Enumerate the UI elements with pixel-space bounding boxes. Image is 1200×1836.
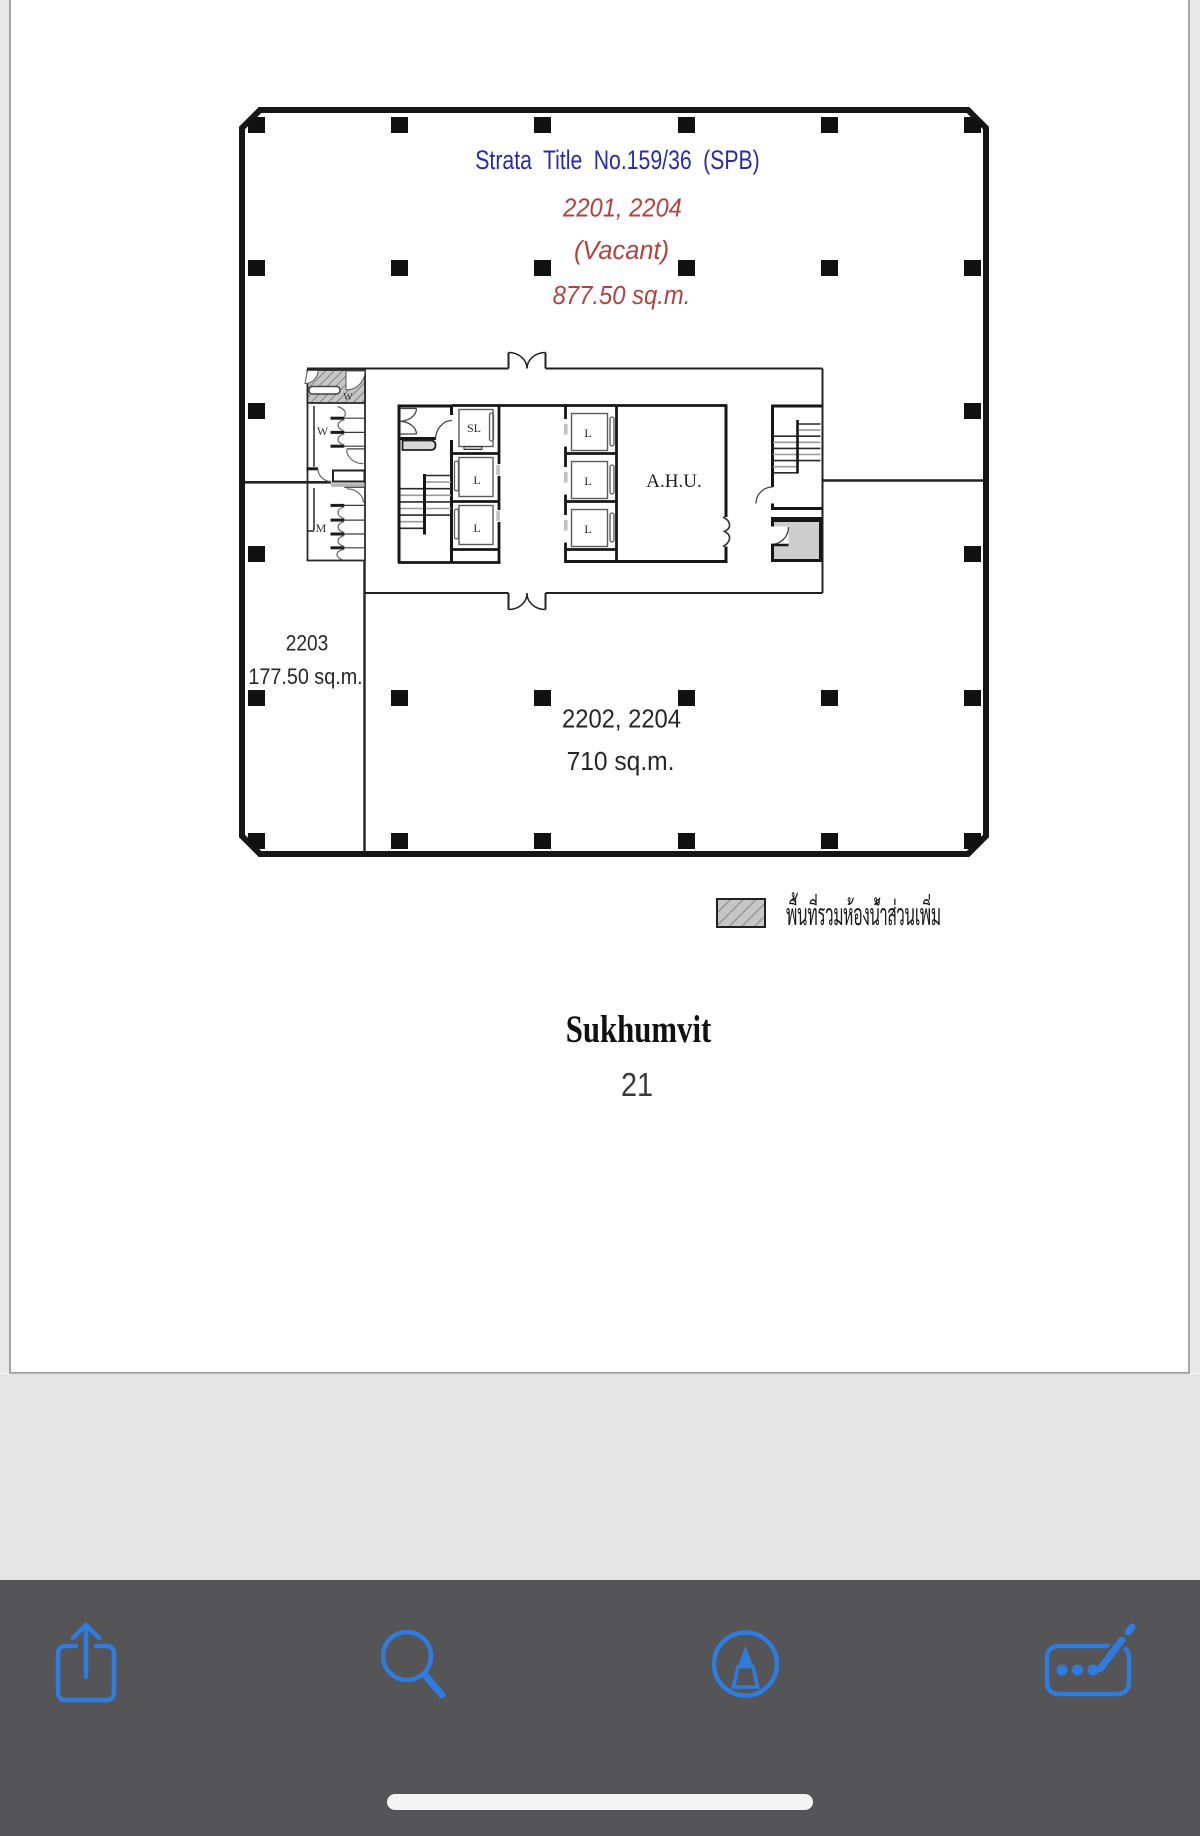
- svg-text:2202, 2204: 2202, 2204: [562, 705, 681, 734]
- svg-text:A.H.U.: A.H.U.: [646, 471, 701, 492]
- svg-text:L: L: [473, 473, 480, 487]
- svg-text:(Vacant): (Vacant): [574, 237, 669, 265]
- svg-text:L: L: [584, 426, 591, 440]
- svg-text:177.50 sq.m.: 177.50 sq.m.: [248, 665, 362, 689]
- svg-text:M: M: [316, 521, 327, 535]
- svg-text:Sukhumvit: Sukhumvit: [566, 1008, 712, 1051]
- svg-text:SL: SL: [467, 421, 481, 435]
- svg-text:710 sq.m.: 710 sq.m.: [567, 747, 675, 776]
- svg-text:2201, 2204: 2201, 2204: [562, 194, 682, 223]
- svg-text:877.50 sq.m.: 877.50 sq.m.: [553, 281, 691, 310]
- svg-text:2203: 2203: [286, 631, 329, 656]
- svg-text:L: L: [584, 522, 591, 536]
- svg-text:W: W: [317, 424, 329, 438]
- svg-text:L: L: [473, 521, 480, 535]
- svg-text:21: 21: [621, 1066, 653, 1103]
- svg-text:W: W: [343, 392, 353, 403]
- svg-text:Strata Title No.159/36 (SPB): Strata Title No.159/36 (SPB): [475, 145, 759, 175]
- svg-text:L: L: [584, 474, 591, 488]
